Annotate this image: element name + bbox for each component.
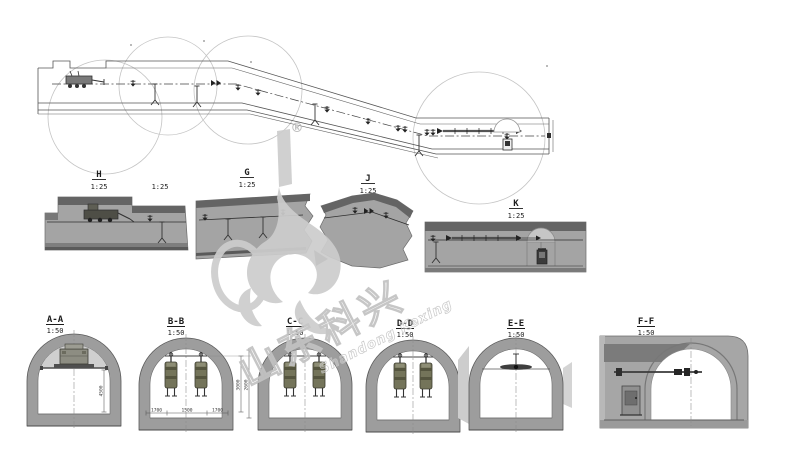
floor-band [425,268,586,272]
dim-text: 4500 [99,385,105,396]
section-aa-scale: 1:50 [47,327,64,335]
detail-k-scale: 1:25 [508,212,525,220]
detail-circle-j [194,36,302,144]
section-bb-scale: 1:50 [168,329,185,337]
cabinet-front-icon [620,386,642,415]
anchor-mark-icon [255,89,260,96]
plan-tunnel-outline [38,61,553,158]
dim-text: 3000 [236,379,242,390]
floor-band [600,420,748,428]
plan-view [38,36,553,204]
detail-h-scale: 1:25 [91,183,108,191]
detail-g-letter: G [244,168,249,178]
detail-circle-g [119,37,217,135]
cad-canvas: H 1:25 1:25 G 1:25 J [0,0,800,450]
detail-h-letter: H [96,170,101,180]
lining-band [45,213,58,220]
section-view-bb: B-B 1:50 3000 2600 [139,317,252,434]
section-bb-label: B-B [168,317,185,327]
section-ff-label: F-F [638,317,654,327]
circle-tag-mark [203,40,205,42]
detail-circle-k [413,72,545,204]
detail-view-k: K 1:25 [425,199,586,272]
floor-band [45,243,188,247]
circle-tag-mark [546,65,548,67]
detail-g-scale: 1:25 [239,181,256,189]
circle-tag-mark [250,61,252,63]
niche-arch-plan [494,119,520,132]
detail-circle-h [48,60,162,174]
end-wall-fixture [547,133,551,138]
overbreak-right [563,362,572,408]
anchor-mark-icon [424,129,429,136]
detail-k-letter: K [513,199,519,209]
flow-arrow-icon [211,80,221,86]
dim-text: 1700 [212,408,223,414]
registered-mark-icon: ® [291,121,304,136]
section-view-ff: F-F 1:50 [600,317,748,428]
section-aa-label: A-A [47,315,64,325]
section-view-aa: A-A 1:50 4500 [27,315,121,430]
floor-band [45,247,188,250]
section-ee-label: E-E [508,319,524,329]
tunnel-profile [366,336,460,436]
anchor-mark-icon [430,129,435,136]
lining-band [132,206,185,213]
circle-tag-mark [130,44,132,46]
tunnel-profile [469,334,563,434]
tunnel-profile [139,334,233,434]
cabinet-plan-icon [503,139,512,150]
drawing-sheet: H 1:25 1:25 G 1:25 J [0,0,800,450]
dim-text: 1700 [151,408,162,414]
anchor-mark-icon [130,80,135,87]
section-view-ee: E-E 1:50 [458,319,572,434]
overbreak-left [458,346,469,424]
jet-fan-symbol [311,104,319,125]
lining-band [425,222,586,231]
dim-text: 1500 [181,408,192,414]
detail-view-h: H 1:25 1:25 [45,170,188,250]
anchor-mark-icon [365,118,370,125]
detail-h2-scale: 1:25 [152,183,169,191]
drill-jumbo-plan-icon [66,71,104,88]
anchor-mark-icon [235,84,240,91]
detail-j-letter: J [365,174,370,184]
